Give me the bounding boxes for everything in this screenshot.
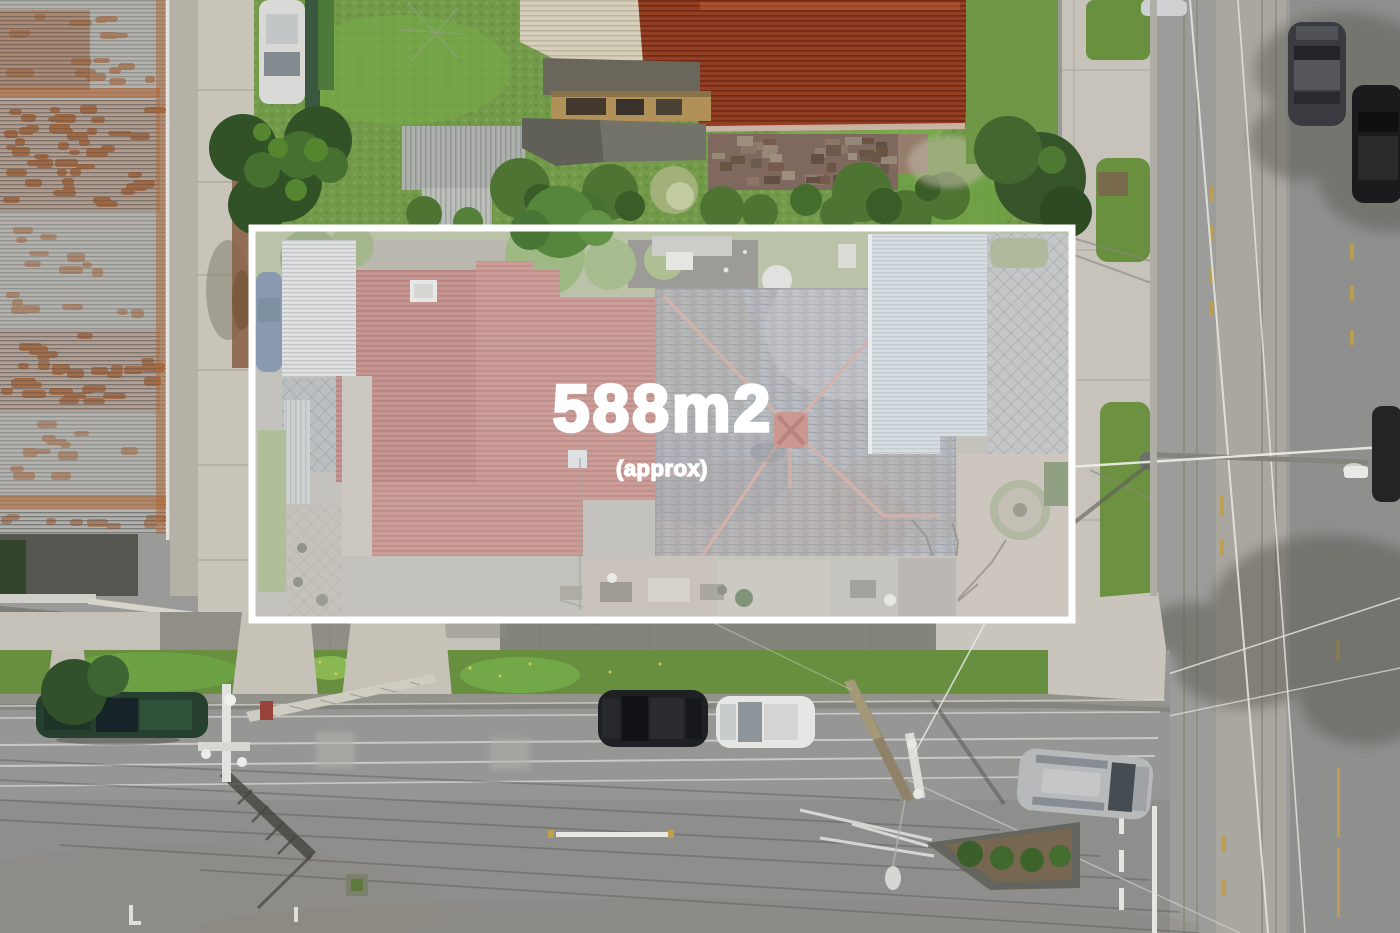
svg-text:588m2: 588m2 xyxy=(553,371,774,445)
svg-text:(approx): (approx) xyxy=(616,456,708,481)
